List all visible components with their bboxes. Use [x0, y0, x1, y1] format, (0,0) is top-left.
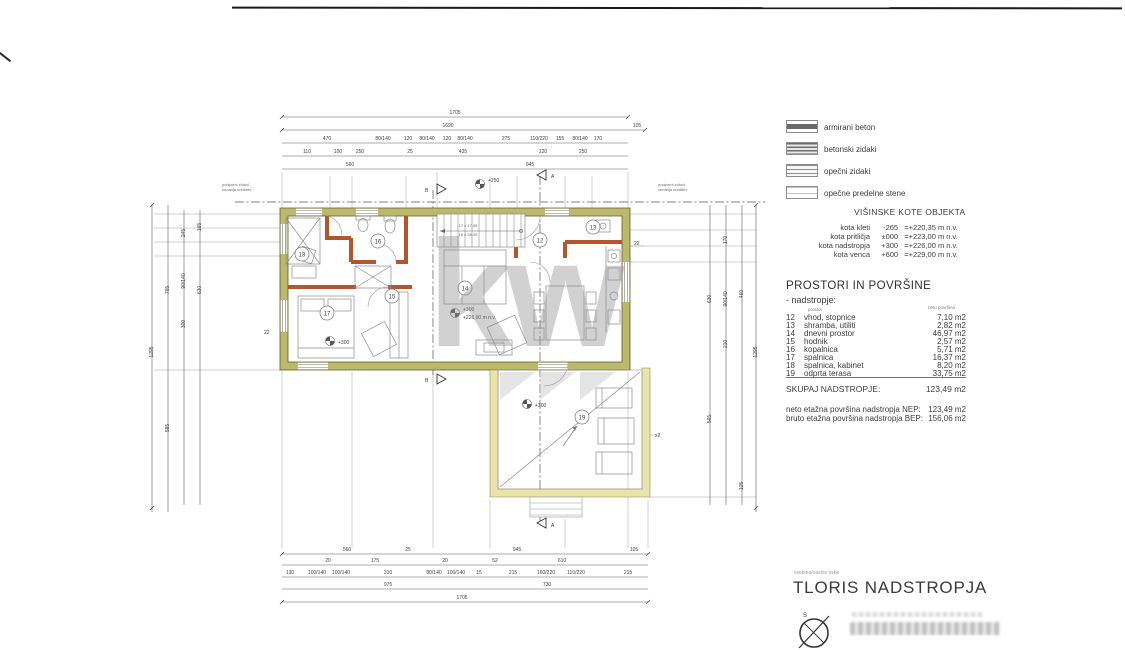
drawing-title: TLORIS NADSTROPJA	[793, 578, 987, 598]
svg-text:x2: x2	[655, 433, 661, 439]
legend-label: betonski zidaki	[824, 145, 876, 154]
svg-text:945: 945	[513, 547, 522, 553]
svg-text:20: 20	[325, 558, 331, 564]
nep-row: neto etažna površina nadstropja NEP: 123…	[786, 405, 966, 414]
svg-text:19: 19	[579, 416, 586, 422]
svg-text:275: 275	[502, 136, 511, 142]
kote-abs: =+223,00 m n.v.	[900, 232, 958, 241]
svg-text:A: A	[551, 523, 555, 529]
svg-text:52: 52	[492, 558, 498, 564]
svg-text:105: 105	[739, 482, 745, 491]
compass-icon: S	[791, 608, 837, 650]
nep-value: 123,49 m2	[928, 405, 966, 414]
svg-text:630: 630	[197, 286, 203, 295]
svg-text:470: 470	[323, 136, 332, 142]
svg-text:80/140: 80/140	[375, 136, 391, 142]
legend-swatch-opecne-predelne-stene	[786, 186, 818, 199]
svg-text:310: 310	[384, 570, 393, 576]
svg-text:105: 105	[633, 123, 642, 129]
svg-text:1690: 1690	[442, 123, 453, 129]
svg-text:100/140: 100/140	[308, 570, 326, 576]
bep-label: bruto etažna površina nadstropja BEP:	[786, 414, 923, 423]
svg-text:250: 250	[579, 149, 588, 155]
svg-text:1295: 1295	[149, 346, 155, 357]
scanned-drawing-page: 1705 1690 105 470 80/140 120 80/140 120 …	[0, 0, 1125, 650]
svg-text:1705: 1705	[456, 595, 467, 601]
svg-text:170: 170	[594, 136, 603, 142]
svg-text:215: 215	[624, 570, 633, 576]
legend-swatch-armirani-beton	[786, 120, 818, 133]
drawing-caption: vsebina/naslov risbe	[794, 570, 839, 576]
svg-text:220: 220	[539, 149, 548, 155]
kote-abs: =+229,00 m n.v.	[900, 250, 958, 259]
svg-text:+300: +300	[535, 403, 546, 409]
legend-label: armirani beton	[824, 123, 875, 132]
kote-rel: +600	[872, 250, 898, 259]
nep-label: neto etažna površina nadstropja NEP:	[786, 405, 921, 414]
svg-text:80/140: 80/140	[572, 136, 588, 142]
svg-text:170: 170	[723, 236, 729, 245]
svg-text:630: 630	[707, 295, 713, 304]
svg-text:A: A	[551, 174, 555, 180]
svg-text:B: B	[425, 188, 429, 194]
rooms-areas-title: PROSTORI IN POVRŠINE	[786, 280, 931, 292]
svg-text:565: 565	[707, 415, 713, 424]
kote-rel: +300	[872, 241, 898, 250]
svg-text:250: 250	[356, 149, 365, 155]
heights-row: kota nadstropja +300 =+226,00 m n.v.	[786, 241, 982, 250]
svg-text:16: 16	[375, 240, 382, 246]
svg-text:S: S	[803, 613, 807, 619]
svg-text:730: 730	[543, 582, 552, 588]
svg-text:945: 945	[526, 162, 535, 168]
heights-row: kota pritličja ±000 =+223,00 m n.v.	[786, 232, 982, 241]
svg-text:120: 120	[404, 136, 413, 142]
kote-name: kota pritličja	[786, 232, 870, 241]
svg-text:25: 25	[405, 547, 411, 553]
col-header-povrsina: neto površina	[928, 305, 955, 310]
kote-abs: =+220,35 m n.v.	[900, 223, 958, 232]
legend-label: opečni zidaki	[824, 167, 870, 176]
svg-text:+300: +300	[338, 340, 349, 346]
svg-text:90/140: 90/140	[181, 273, 187, 289]
skupaj-row: SKUPAJ NADSTROPJE: 123,49 m2	[786, 384, 966, 394]
svg-text:165: 165	[197, 223, 203, 232]
kote-abs: =+226,00 m n.v.	[900, 241, 958, 250]
heights-row: kota venca +600 =+229,00 m n.v.	[786, 250, 982, 259]
svg-text:560: 560	[346, 162, 355, 168]
svg-text:80/140: 80/140	[426, 570, 442, 576]
svg-text:zunanja ureditev: zunanja ureditev	[658, 187, 687, 192]
svg-text:18: 18	[299, 253, 306, 259]
skupaj-value: 123,49 m2	[926, 384, 966, 394]
svg-text:210: 210	[723, 340, 729, 349]
svg-text:100: 100	[334, 149, 343, 155]
svg-text:120: 120	[443, 136, 452, 142]
svg-text:160/220: 160/220	[537, 570, 555, 576]
svg-text:90/140: 90/140	[723, 291, 729, 307]
svg-text:100/140: 100/140	[447, 570, 465, 576]
svg-text:975: 975	[384, 582, 393, 588]
terrace	[490, 368, 650, 517]
svg-text:245: 245	[181, 229, 187, 238]
svg-text:80/140: 80/140	[419, 136, 435, 142]
svg-text:765: 765	[165, 286, 171, 295]
table-divider	[786, 377, 966, 378]
svg-text:17: 17	[324, 312, 331, 318]
legend-swatch-betonski-zidaki	[786, 142, 818, 155]
kote-name: kota nadstropja	[786, 241, 870, 250]
svg-text:15: 15	[389, 295, 396, 301]
svg-text:435: 435	[459, 149, 468, 155]
svg-text:80/140: 80/140	[457, 136, 473, 142]
col-header-prostor: prostor	[808, 307, 822, 312]
svg-text:110/220: 110/220	[530, 136, 548, 142]
redacted-firm-text	[850, 622, 1000, 635]
svg-text:175: 175	[371, 558, 380, 564]
svg-text:560: 560	[343, 547, 352, 553]
kote-name: kota kleti	[786, 223, 870, 232]
svg-text:460: 460	[739, 290, 745, 299]
svg-text:300: 300	[181, 320, 187, 329]
kw-watermark: kw	[428, 218, 619, 370]
svg-text:105: 105	[630, 547, 639, 553]
svg-text:130: 130	[286, 570, 295, 576]
svg-text:110: 110	[303, 149, 311, 155]
heights-row: kota kleti -265 =+220,35 m n.v.	[786, 223, 982, 232]
svg-text:215: 215	[509, 570, 518, 576]
svg-text:zunanja ureditev: zunanja ureditev	[222, 187, 251, 192]
kote-name: kota venca	[786, 250, 870, 259]
svg-text:22: 22	[264, 330, 270, 336]
kote-rel: ±000	[872, 232, 898, 241]
kote-rel: -265	[872, 223, 898, 232]
svg-text:155: 155	[556, 136, 565, 142]
svg-text:15: 15	[476, 570, 482, 576]
svg-text:610: 610	[558, 558, 567, 564]
svg-text:585: 585	[165, 424, 171, 433]
svg-text:25: 25	[407, 149, 413, 155]
svg-text:100/140: 100/140	[332, 570, 350, 576]
redacted-firm-caption	[852, 612, 982, 617]
svg-text:110/220: 110/220	[567, 570, 585, 576]
bep-row: bruto etažna površina nadstropja BEP: 15…	[786, 414, 966, 423]
heights-title: VIŠINSKE KOTE OBJEKTA	[854, 207, 965, 217]
svg-text:+250: +250	[488, 178, 499, 184]
legend-label: opečne predelne stene	[824, 189, 905, 198]
skupaj-label: SKUPAJ NADSTROPJE:	[786, 384, 880, 394]
svg-text:1705: 1705	[449, 110, 460, 116]
svg-text:1295: 1295	[753, 346, 759, 357]
svg-text:20: 20	[442, 558, 448, 564]
rooms-areas-subtitle: - nadstropje:	[786, 295, 836, 305]
bep-value: 156,06 m2	[928, 414, 966, 423]
legend-swatch-opecni-zidaki	[786, 164, 818, 177]
info-panel: armirani beton betonski zidaki opečni zi…	[786, 0, 1001, 650]
